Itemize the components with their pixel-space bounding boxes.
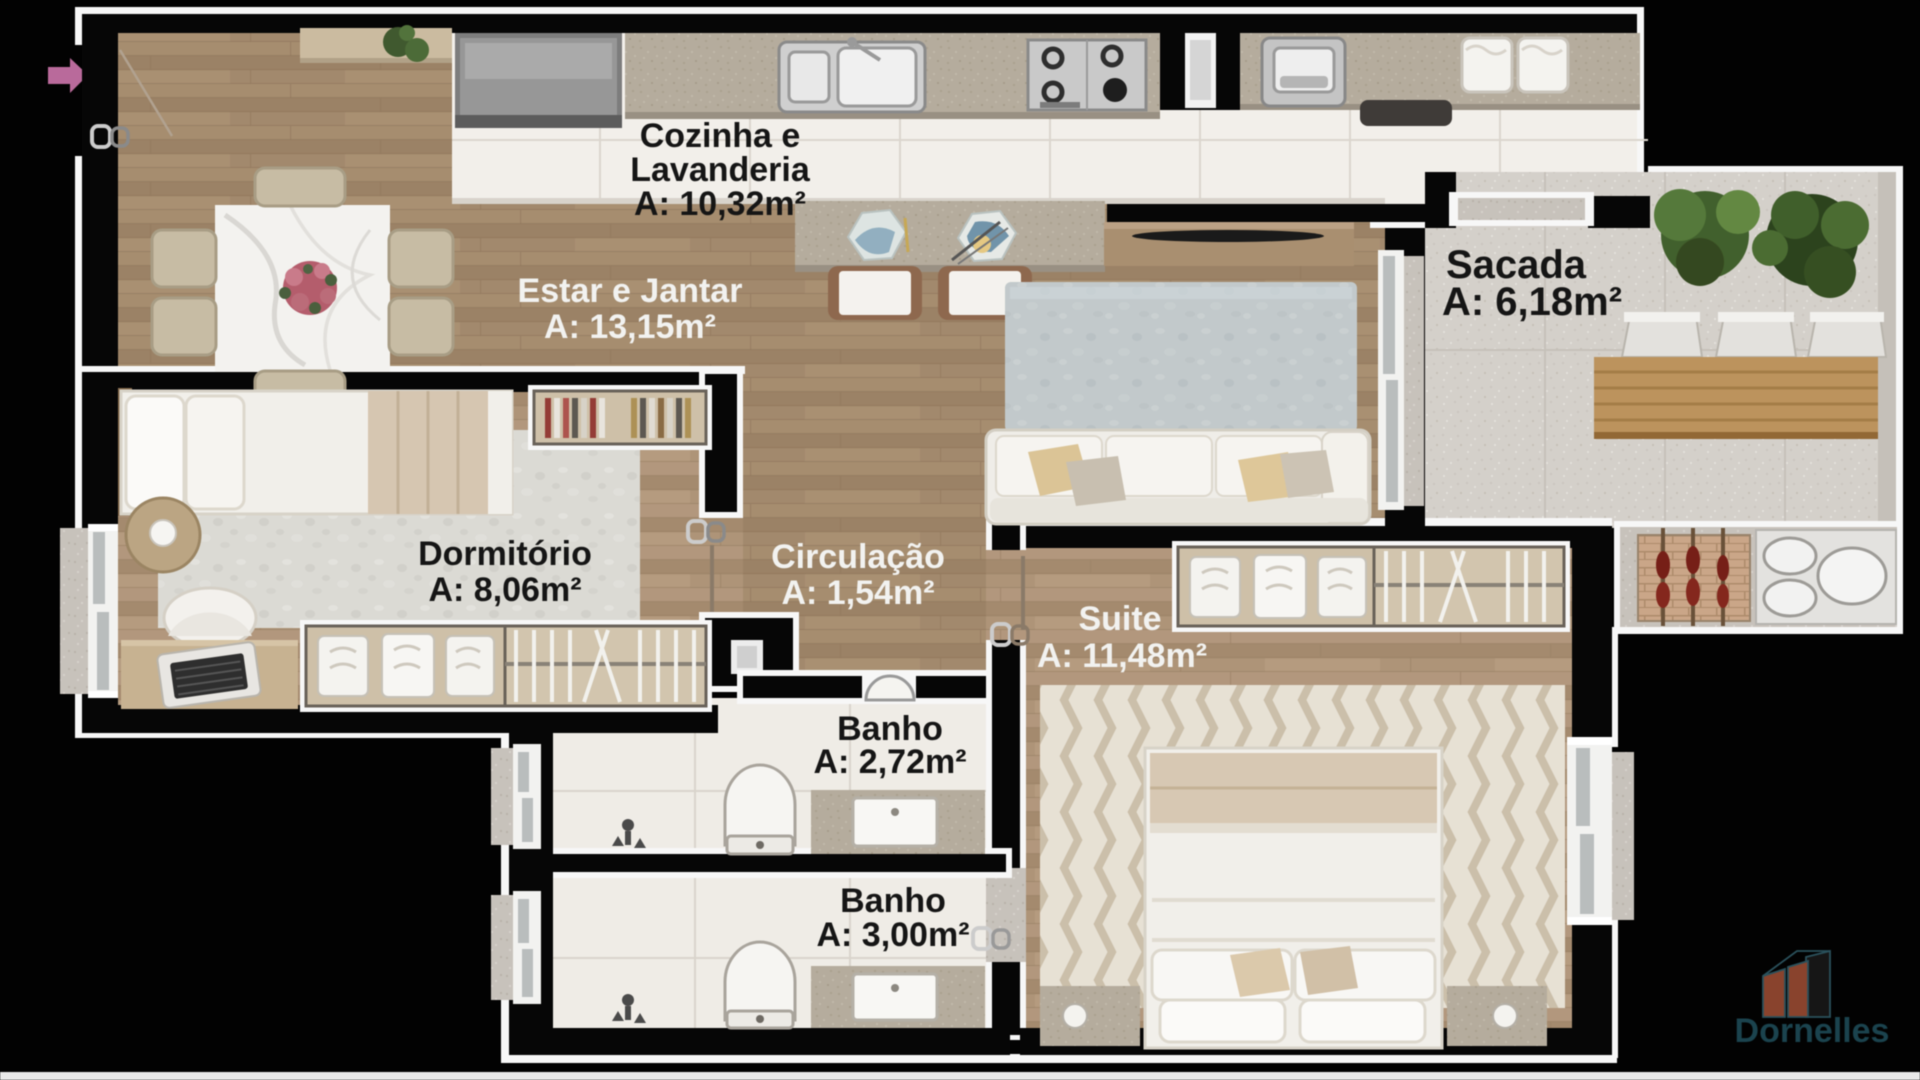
svg-text:Dormitório: Dormitório (418, 535, 592, 573)
svg-text:Banho: Banho (840, 882, 946, 920)
svg-text:A: 8,06m²: A: 8,06m² (428, 571, 581, 609)
svg-text:Cozinha e: Cozinha e (640, 117, 801, 155)
svg-text:A: 10,32m²: A: 10,32m² (634, 185, 806, 223)
svg-text:A: 13,15m²: A: 13,15m² (544, 308, 716, 346)
svg-text:Dornelles: Dornelles (1735, 1012, 1890, 1050)
svg-text:A: 6,18m²: A: 6,18m² (1442, 280, 1622, 324)
svg-text:A: 11,48m²: A: 11,48m² (1037, 637, 1207, 675)
svg-text:Estar e Jantar: Estar e Jantar (518, 272, 743, 310)
svg-text:A: 3,00m²: A: 3,00m² (816, 916, 969, 954)
svg-text:A: 2,72m²: A: 2,72m² (813, 743, 966, 781)
svg-text:A: 1,54m²: A: 1,54m² (781, 574, 934, 612)
svg-text:Suite: Suite (1078, 600, 1161, 638)
svg-text:Circulação: Circulação (771, 538, 945, 576)
svg-text:Lavanderia: Lavanderia (630, 151, 811, 189)
